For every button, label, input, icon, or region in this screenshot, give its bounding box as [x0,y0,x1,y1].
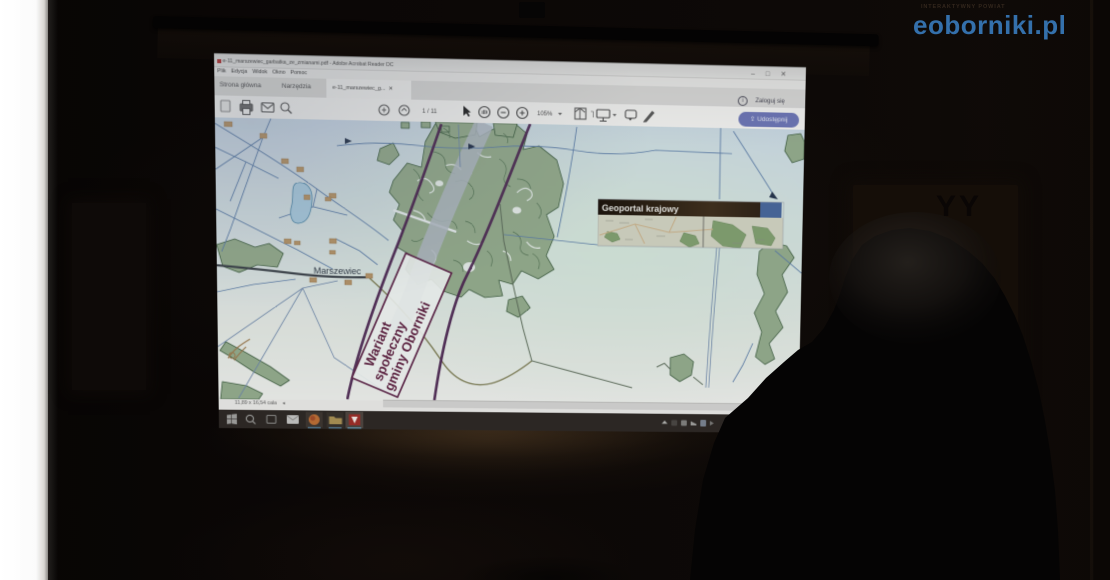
svg-text:Marszewiec: Marszewiec [314,266,362,276]
svg-text:1 / 11: 1 / 11 [422,108,437,115]
svg-text:105%: 105% [537,110,553,117]
